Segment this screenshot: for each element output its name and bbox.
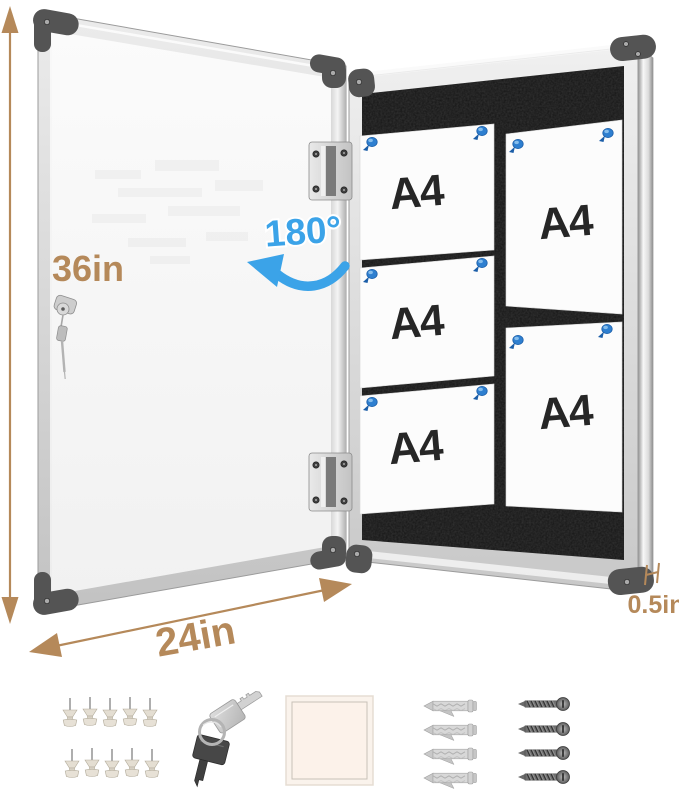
screw-icon	[518, 698, 570, 711]
accessory-adhesive-pad	[286, 696, 373, 785]
push-pin-icon	[85, 748, 99, 777]
hinge-bottom	[309, 453, 352, 511]
paper-label: A4	[386, 421, 445, 475]
arrow-left-icon	[29, 633, 62, 657]
push-pin-icon	[145, 749, 159, 778]
door-panel	[31, 7, 347, 616]
screw-icon	[518, 723, 570, 736]
accessory-screws	[518, 698, 570, 784]
depth-label: 0.5in	[628, 591, 679, 619]
arrow-up-icon	[2, 6, 19, 33]
height-label: 36in	[52, 248, 124, 289]
accessory-push-pins	[63, 697, 159, 778]
product-illustration: A4 A4 A4 A4 A4	[0, 0, 679, 793]
push-pin-icon	[123, 697, 137, 726]
arrow-right-icon	[319, 578, 352, 602]
push-pin-icon	[143, 698, 157, 727]
open-angle-label: 180°	[263, 208, 342, 254]
key-icon	[209, 685, 268, 734]
paper-label: A4	[536, 196, 595, 250]
wall-anchor-icon	[424, 724, 477, 741]
paper-label: A4	[387, 166, 446, 220]
wall-anchor-icon	[424, 772, 477, 789]
paper-label: A4	[536, 386, 595, 440]
cabinet-panel: A4 A4 A4 A4 A4	[345, 34, 658, 597]
wall-anchor-icon	[424, 700, 477, 717]
screw-icon	[518, 771, 570, 784]
hinge-top	[309, 142, 352, 200]
wall-anchor-icon	[424, 748, 477, 765]
width-label: 24in	[152, 608, 238, 665]
screw-icon	[518, 747, 570, 760]
push-pin-icon	[125, 748, 139, 777]
push-pin-icon	[83, 697, 97, 726]
door-face	[52, 31, 331, 595]
accessory-wall-anchors	[424, 700, 477, 789]
arrow-down-icon	[2, 597, 19, 624]
push-pin-icon	[105, 749, 119, 778]
push-pin-icon	[63, 698, 77, 727]
accessory-keys	[186, 685, 268, 792]
cabinet-depth-edge	[638, 46, 653, 592]
push-pin-icon	[65, 749, 79, 778]
push-pin-icon	[103, 698, 117, 727]
paper-label: A4	[387, 296, 446, 350]
